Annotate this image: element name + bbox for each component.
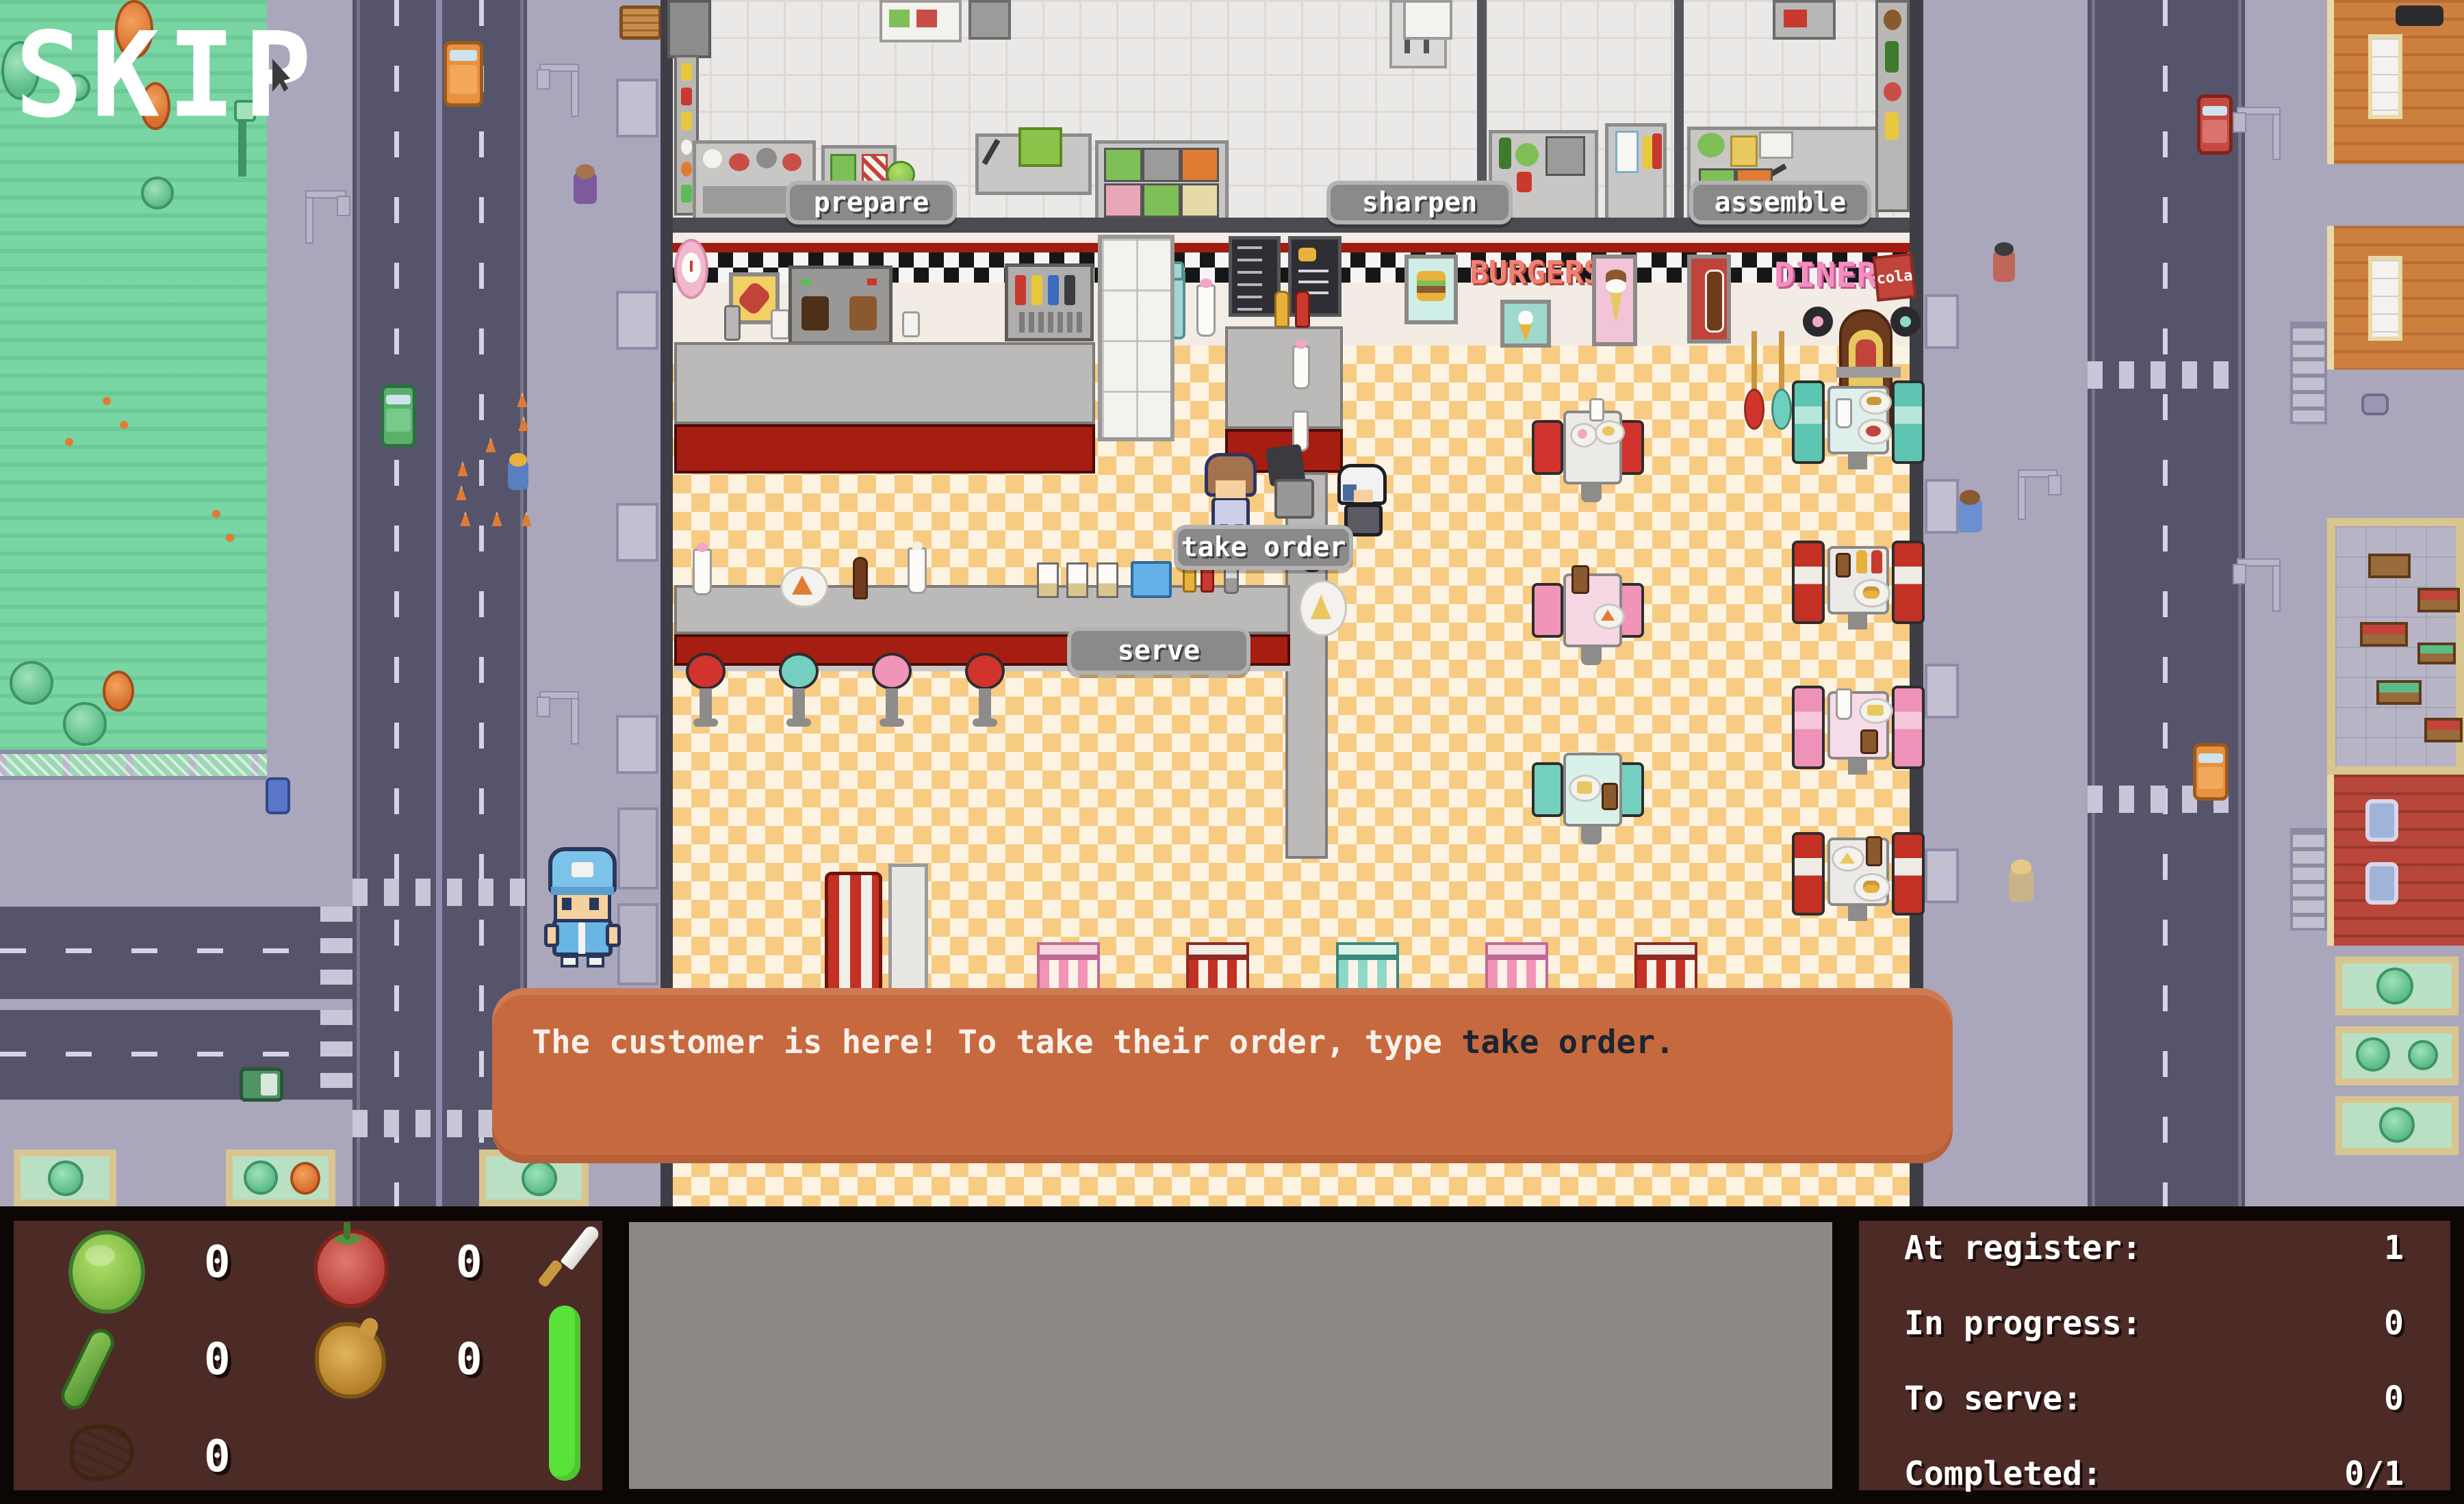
- lettuce-icon: [68, 1230, 145, 1314]
- tree-icon: [63, 702, 107, 746]
- cola-sign-label: cola: [1875, 267, 1913, 287]
- rooftop-patio: [2327, 518, 2464, 775]
- stool[interactable]: [779, 653, 819, 690]
- flower: [103, 397, 111, 405]
- receipt-pad: [1096, 562, 1118, 598]
- booth-table: [1827, 838, 1889, 906]
- stat-in-progress: In progress:0: [1904, 1304, 2404, 1343]
- milkshake: [908, 547, 927, 594]
- dialogue-box: The customer is here! To take their orde…: [492, 988, 1953, 1163]
- pedestrian: [1993, 250, 2015, 282]
- dining-table: [1563, 411, 1622, 484]
- stat-label: Completed:: [1904, 1455, 2102, 1493]
- tomato-count: 0: [456, 1237, 483, 1288]
- stairs: [2290, 828, 2327, 931]
- stool[interactable]: [686, 653, 726, 690]
- crosswalk: [352, 879, 527, 906]
- milkshake: [693, 549, 712, 595]
- cucumber-count: 0: [204, 1334, 231, 1385]
- car: [2197, 94, 2233, 155]
- register-counter: [1225, 326, 1343, 429]
- receipt-pad: [1037, 562, 1059, 598]
- wall-clock-icon: [674, 239, 708, 299]
- stairs: [2290, 322, 2327, 424]
- tree-icon: [141, 177, 174, 209]
- kitchen-box: [1403, 0, 1452, 40]
- park-fence: [0, 750, 267, 780]
- wall-unit: [1925, 294, 1959, 349]
- stat-value: 0/1: [2344, 1455, 2404, 1493]
- entrance-door[interactable]: [1098, 235, 1175, 441]
- round-bin: [2361, 393, 2389, 415]
- receipt-pad: [1066, 562, 1088, 598]
- flower: [212, 510, 220, 518]
- locker: [617, 903, 658, 985]
- wall-unit: [616, 715, 658, 774]
- locker: [617, 807, 658, 890]
- wall-unit: [616, 291, 658, 350]
- stool[interactable]: [965, 653, 1005, 690]
- booth-table: [1827, 691, 1889, 760]
- striped-sofa: [825, 872, 882, 994]
- kitchen-box: [1773, 0, 1836, 40]
- stat-label: To serve:: [1904, 1379, 2082, 1418]
- burgers-sign: BURGERS: [1470, 252, 1586, 293]
- wall-unit: [1925, 848, 1959, 903]
- cola-poster: [1687, 255, 1731, 343]
- tomato-icon: [313, 1229, 389, 1308]
- kitchen-box: [968, 0, 1011, 40]
- building-orange: [2327, 226, 2464, 369]
- veggie-crates: [1095, 140, 1229, 226]
- booth-table: [1827, 386, 1889, 454]
- street-lamp: [2019, 471, 2025, 519]
- menu-board: [1229, 236, 1281, 317]
- pedestrian: [1958, 498, 1982, 532]
- cutting-table: [975, 133, 1092, 195]
- pedestrian: [574, 172, 597, 204]
- street-lamp: [2274, 560, 2279, 610]
- action-label-serve: serve: [1067, 627, 1250, 675]
- crosswalk: [320, 907, 352, 999]
- yard: [2335, 1026, 2459, 1085]
- left-counter-front: [674, 424, 1095, 474]
- left-counter: [674, 342, 1095, 424]
- street-lamp: [572, 65, 578, 116]
- mustard-bottle: [1274, 291, 1289, 328]
- stat-value: 0: [2384, 1304, 2404, 1343]
- wall-unit: [616, 79, 658, 138]
- white-panel: [888, 864, 928, 992]
- truck: [240, 1067, 283, 1102]
- cup: [902, 311, 920, 337]
- station-label-sharpen: sharpen: [1326, 181, 1513, 224]
- stat-label: At register:: [1904, 1229, 2142, 1267]
- pedestrian: [508, 460, 528, 490]
- pedestrian: [2009, 868, 2033, 902]
- dining-table: [1563, 573, 1622, 647]
- icecream-poster: [1500, 300, 1551, 348]
- durability-bar: [549, 1306, 580, 1481]
- towel-station: [1605, 123, 1667, 224]
- stat-value: 0: [2384, 1379, 2404, 1418]
- bus: [444, 41, 483, 107]
- sundae-poster: [1592, 255, 1637, 346]
- station-label-assemble: assemble: [1689, 181, 1871, 224]
- game-screen: SKIP: [0, 0, 2464, 1504]
- burger-poster: [1404, 255, 1458, 324]
- serving-tray[interactable]: [1131, 561, 1172, 598]
- station-label-prepare: prepare: [786, 181, 957, 224]
- vinyl-record-icon: [1803, 307, 1833, 337]
- ketchup-bottle: [1295, 291, 1310, 328]
- kitchen-box: [880, 0, 962, 42]
- terminal-panel[interactable]: [619, 1213, 1842, 1499]
- tree-icon: [103, 671, 134, 712]
- lettuce-count: 0: [204, 1237, 231, 1288]
- tree-icon: [10, 661, 53, 705]
- street-lamp: [2274, 108, 2279, 159]
- stat-completed: Completed:0/1: [1904, 1455, 2404, 1493]
- car: [2193, 743, 2229, 801]
- street-lamp: [307, 192, 312, 242]
- stat-to-serve: To serve:0: [1904, 1379, 2404, 1418]
- stool[interactable]: [872, 653, 912, 690]
- stat-value: 1: [2384, 1229, 2404, 1267]
- vinyl-record-icon: [1890, 307, 1921, 337]
- yard: [14, 1150, 116, 1206]
- knife-icon: [535, 1217, 597, 1293]
- wall-unit: [1925, 664, 1959, 718]
- kitchen-box: [667, 0, 711, 58]
- meat-count: 0: [204, 1431, 231, 1482]
- cola-bottle: [853, 557, 868, 599]
- car: [266, 777, 290, 814]
- building-orange: [2327, 0, 2464, 164]
- cola-sign: cola: [1873, 252, 1917, 302]
- dining-table: [1563, 753, 1622, 827]
- mug: [771, 309, 790, 339]
- flower: [120, 421, 128, 429]
- milkshake: [1292, 346, 1310, 389]
- dialogue-command: take order.: [1461, 1024, 1674, 1061]
- onion-icon: [315, 1322, 386, 1399]
- diner-sign: DINER: [1774, 255, 1870, 296]
- guitar-icon: [1771, 331, 1792, 434]
- dialogue-message: The customer is here! To take their orde…: [532, 1024, 1461, 1061]
- stat-label: In progress:: [1904, 1304, 2142, 1343]
- building-red: [2327, 775, 2464, 946]
- stat-at-register: At register:1: [1904, 1229, 2404, 1267]
- street-lamp: [572, 692, 578, 743]
- flower: [226, 534, 234, 542]
- pie-plate: [1299, 580, 1347, 636]
- jar: [724, 305, 741, 341]
- kitchen-shelf: [1875, 0, 1910, 212]
- pizza-plate: [780, 567, 828, 608]
- cash-register-base: [1274, 479, 1314, 519]
- yard: [226, 1150, 335, 1206]
- soda-fountain: [1005, 263, 1094, 341]
- coffee-machine: [788, 265, 893, 345]
- bench: [619, 5, 662, 40]
- onion-count: 0: [456, 1334, 483, 1385]
- crosswalk: [320, 1010, 352, 1100]
- milkshake: [1196, 285, 1216, 337]
- yard: [2335, 957, 2459, 1015]
- wall-unit: [1925, 479, 1959, 534]
- action-label-take-order: take order: [1174, 525, 1353, 570]
- flower: [65, 438, 73, 446]
- player-character: [544, 847, 621, 972]
- yard: [2335, 1096, 2459, 1155]
- booth-table: [1827, 546, 1889, 614]
- guitar-icon: [1744, 331, 1764, 434]
- customer-character: [1205, 453, 1257, 534]
- crosswalk: [2088, 361, 2245, 389]
- wall-unit: [616, 503, 658, 562]
- car: [381, 385, 416, 448]
